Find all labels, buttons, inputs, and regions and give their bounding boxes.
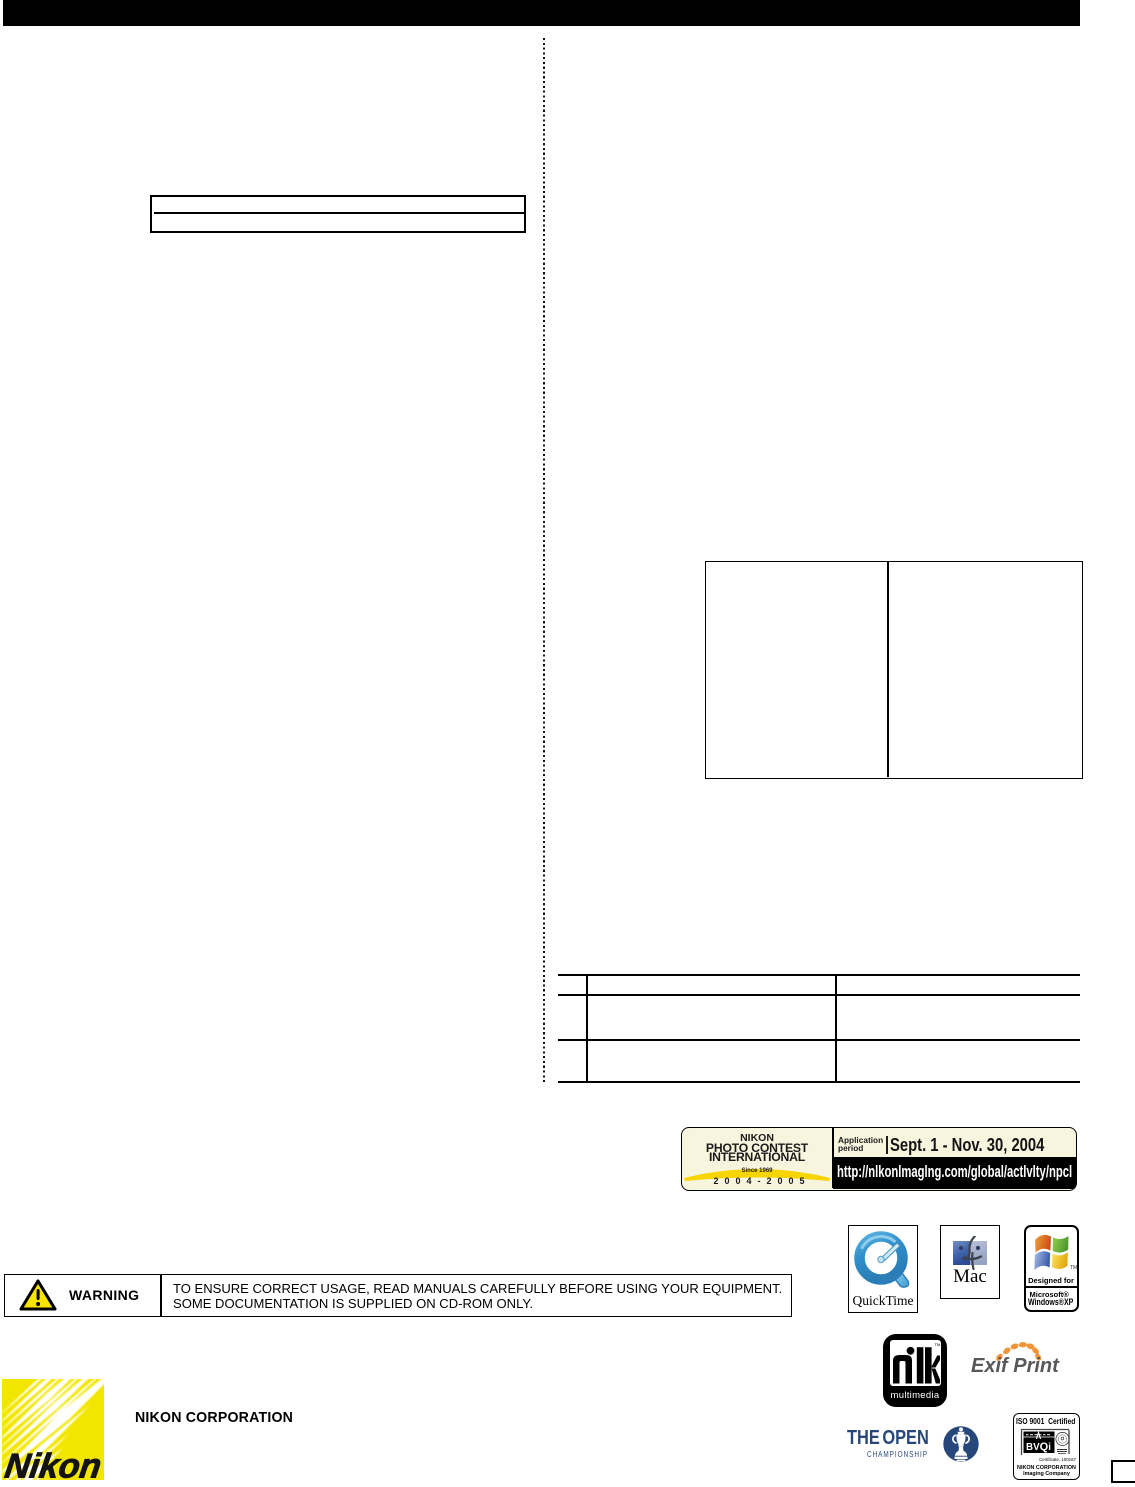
svg-text:Nikon: Nikon: [3, 1448, 104, 1480]
svg-text:TM: TM: [935, 1342, 941, 1347]
svg-text:BVQi: BVQi: [1026, 1441, 1051, 1453]
svg-text:TM: TM: [1070, 1265, 1077, 1271]
